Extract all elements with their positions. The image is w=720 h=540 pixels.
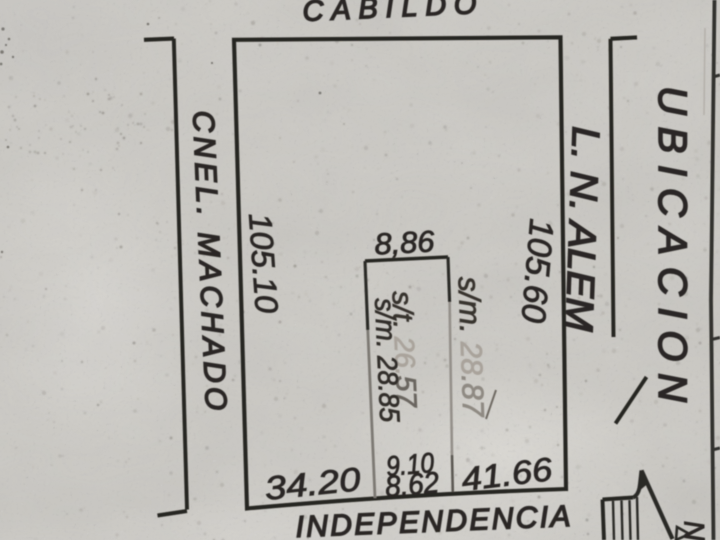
svg-text:8.62: 8.62 (384, 466, 441, 504)
svg-text:UBICACION: UBICACION (650, 86, 694, 402)
svg-text:L. N. ALEM: L. N. ALEM (557, 126, 607, 333)
svg-text:105.10: 105.10 (242, 212, 285, 314)
svg-text:s/m. 28.85: s/m. 28.85 (369, 297, 405, 423)
svg-text:8,86: 8,86 (374, 225, 436, 261)
svg-text:N: N (679, 520, 711, 540)
svg-text:s/m. 28.87: s/m. 28.87 (452, 276, 490, 418)
